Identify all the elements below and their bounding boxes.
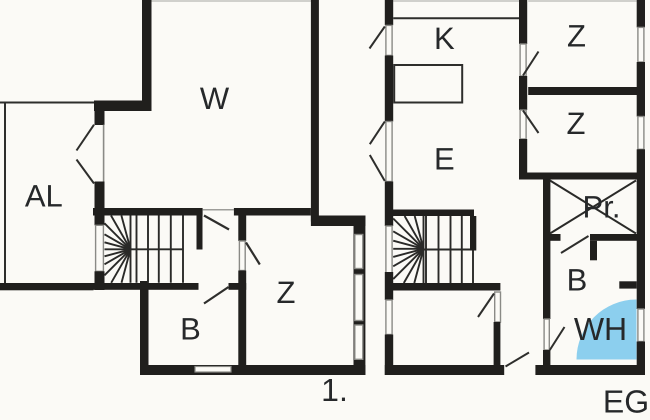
svg-text:W: W bbox=[200, 81, 230, 116]
svg-text:Z: Z bbox=[567, 19, 586, 54]
svg-text:B: B bbox=[180, 312, 201, 347]
svg-text:Z: Z bbox=[277, 275, 296, 310]
svg-text:1.: 1. bbox=[321, 372, 348, 408]
svg-text:Z: Z bbox=[567, 106, 586, 141]
svg-text:K: K bbox=[434, 21, 455, 56]
svg-text:Pr.: Pr. bbox=[583, 190, 621, 225]
svg-text:E: E bbox=[434, 142, 455, 177]
svg-text:B: B bbox=[567, 263, 588, 298]
svg-text:EG: EG bbox=[603, 383, 649, 419]
svg-text:AL: AL bbox=[25, 179, 63, 214]
svg-text:WH: WH bbox=[574, 311, 627, 347]
